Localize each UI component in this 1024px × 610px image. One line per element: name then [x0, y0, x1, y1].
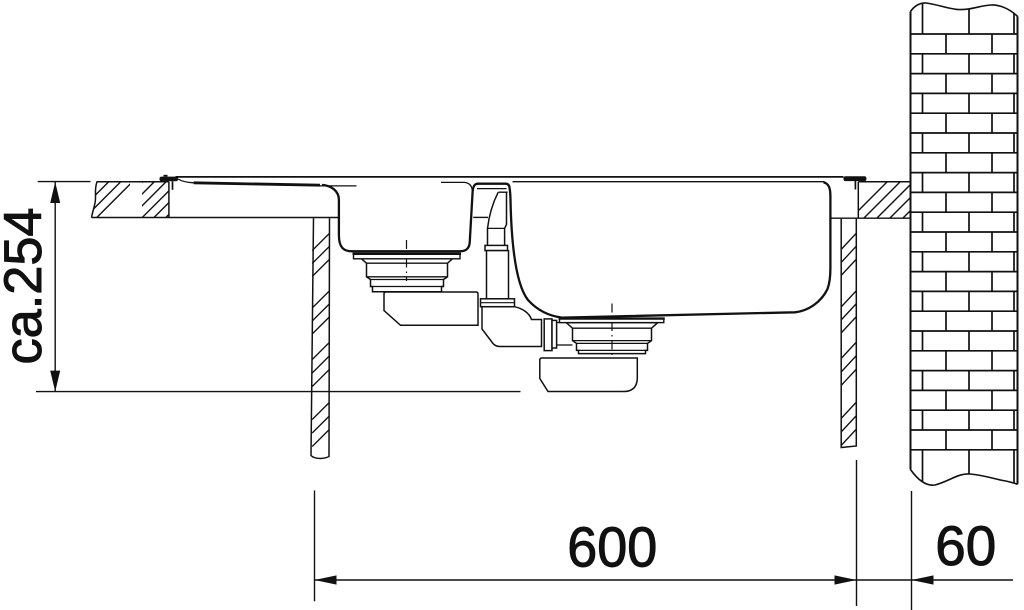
svg-text:60: 60 [935, 514, 996, 577]
svg-text:600: 600 [567, 516, 657, 580]
svg-text:ca.254: ca.254 [0, 208, 53, 365]
